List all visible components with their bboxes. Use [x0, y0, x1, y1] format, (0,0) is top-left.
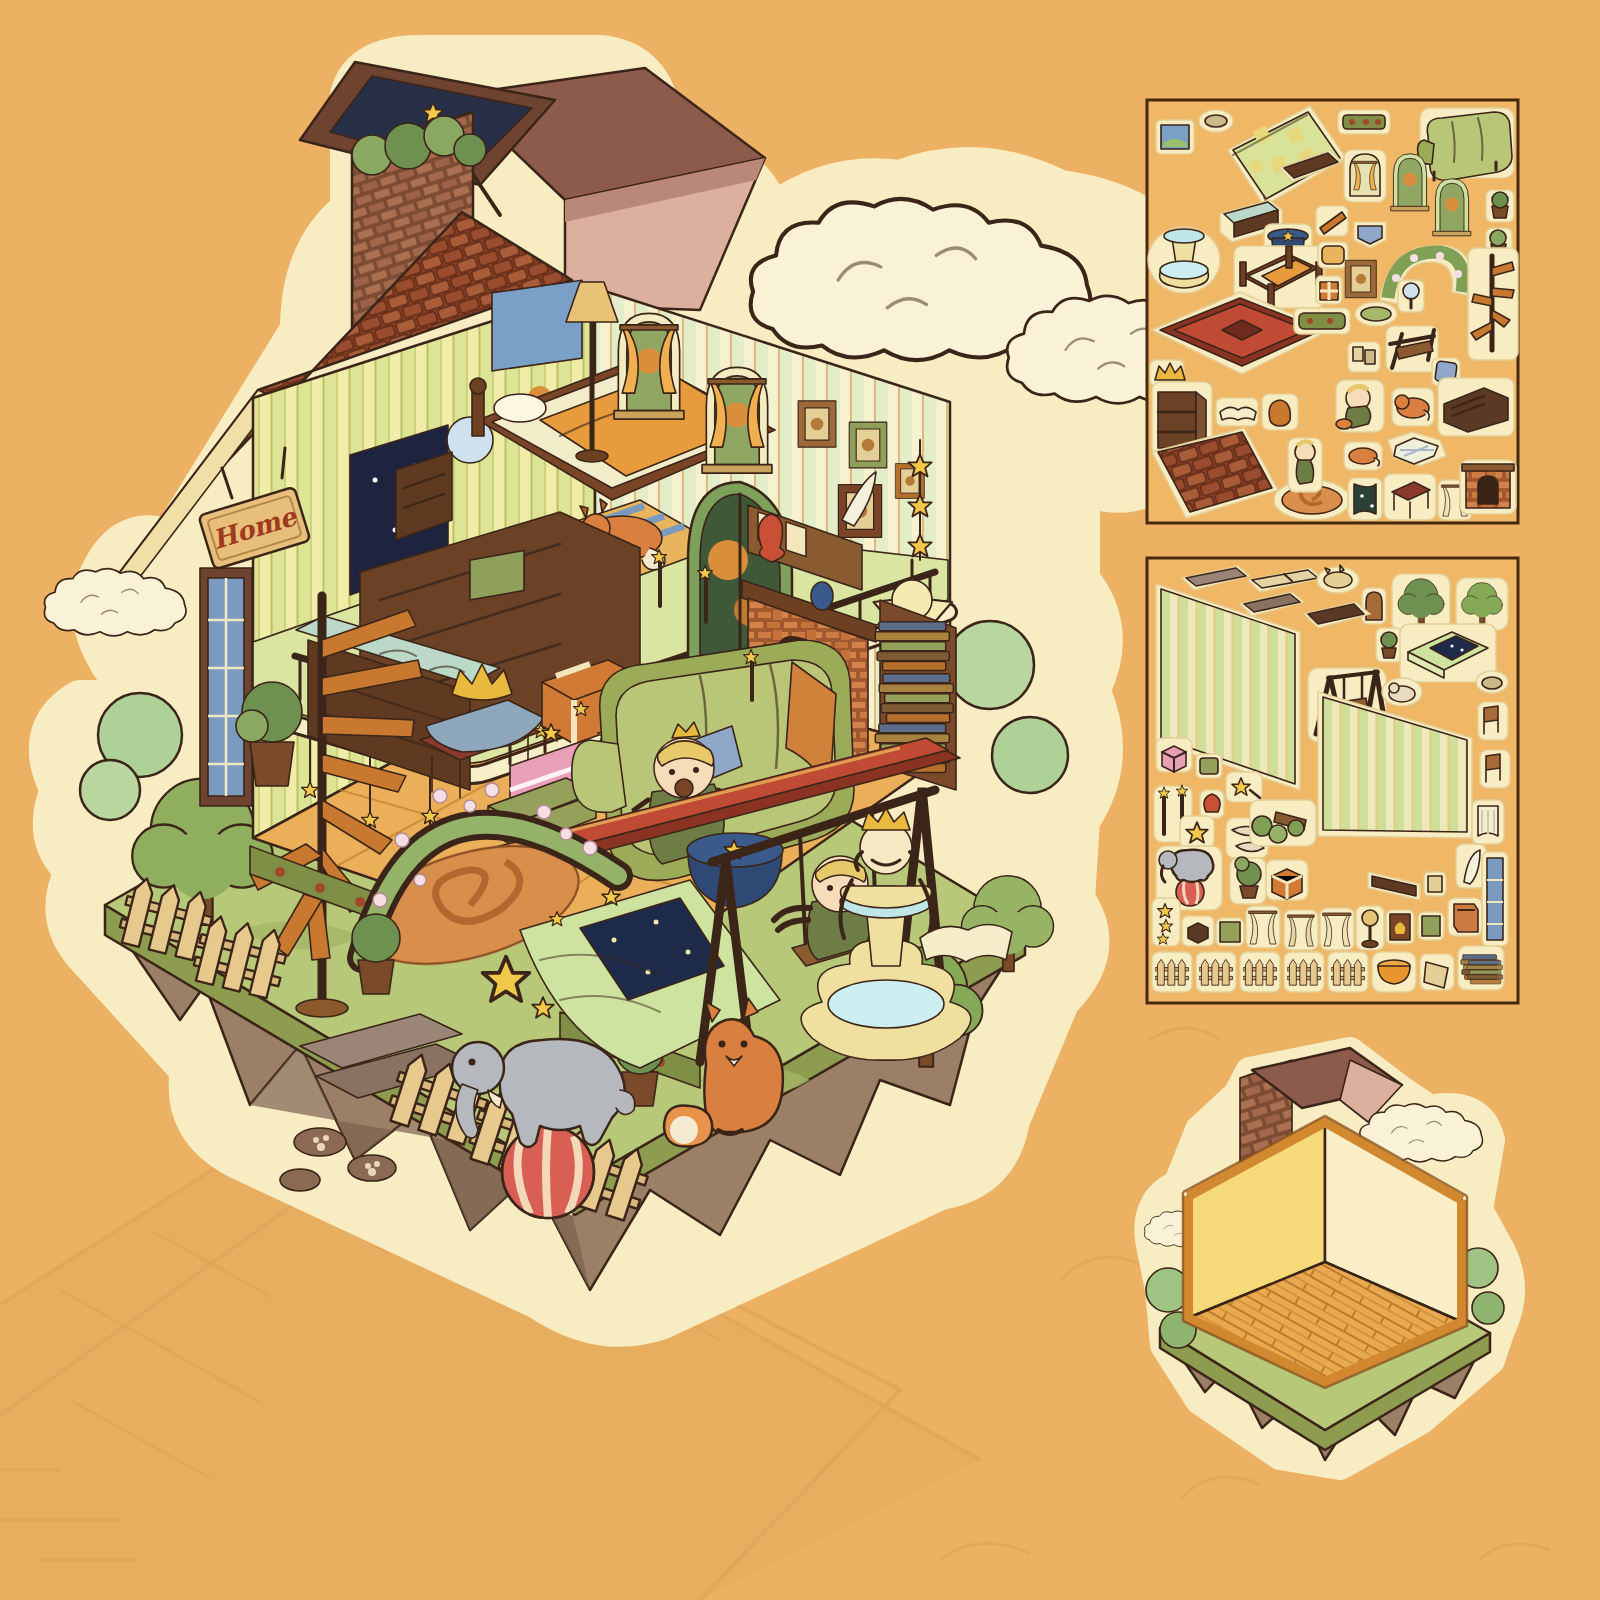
moss-scrap	[1199, 110, 1233, 132]
goat-scrap	[1382, 678, 1422, 706]
gift-box-2	[1266, 860, 1308, 900]
sticker-sheet-1	[1147, 100, 1518, 523]
fences-row	[1152, 952, 1368, 992]
stained-glass-door	[200, 568, 252, 806]
fence-e	[1328, 952, 1368, 992]
green-book	[1196, 754, 1222, 778]
fence-c	[1240, 952, 1280, 992]
wood-scrap	[1262, 394, 1298, 430]
wood-ladder	[1316, 206, 1348, 236]
potted-plant-a	[1486, 190, 1514, 222]
fountain	[1148, 227, 1220, 293]
red-vase	[1200, 790, 1224, 818]
red-stool	[1384, 474, 1436, 520]
small-frame	[1424, 872, 1446, 896]
round-ottoman	[1372, 952, 1416, 992]
fireplace-sticker	[1460, 460, 1516, 514]
sign-scrap	[1420, 954, 1454, 990]
paper-scrap	[1348, 342, 1380, 372]
hand-mirror	[1398, 280, 1424, 312]
empty-room-sticker	[1144, 1048, 1510, 1465]
cushion	[1318, 242, 1348, 268]
fire-painting	[1386, 910, 1414, 944]
pink-gift-box	[1156, 738, 1192, 772]
fence-d	[1284, 952, 1324, 992]
sticker-sheet-2	[1147, 558, 1518, 1003]
fence-b	[1196, 952, 1236, 992]
open-book	[920, 924, 1012, 962]
arch-window-b	[1433, 179, 1471, 236]
curtain-a	[1246, 906, 1280, 948]
towel-rack	[1386, 326, 1438, 372]
curtain-window	[1344, 150, 1386, 202]
chair-b	[1480, 750, 1510, 788]
illustration-canvas: Home	[0, 0, 1600, 1600]
potted-sapling	[1376, 628, 1402, 662]
lying-fox	[1344, 442, 1382, 470]
star-cookie	[1180, 816, 1214, 848]
moss-b	[1355, 302, 1397, 326]
framed-picture	[1156, 120, 1194, 154]
wooden-cube	[1182, 916, 1214, 946]
shooting-star	[1226, 772, 1262, 802]
starry-curtain	[1348, 478, 1382, 520]
framed-art-b	[1418, 912, 1444, 940]
paw-scrap	[1476, 671, 1508, 693]
hedge-strip	[1294, 308, 1350, 334]
gift-box	[1316, 276, 1342, 304]
framed-art-a	[1216, 918, 1244, 946]
dark-dresser	[1438, 378, 1514, 436]
arch-door	[1362, 588, 1386, 624]
teal-window	[1482, 852, 1508, 946]
framed-picture-b	[1346, 260, 1377, 297]
curtain-c	[1320, 908, 1354, 950]
open-book	[1216, 398, 1258, 426]
curtain-b	[1284, 910, 1318, 950]
prince-with-fox	[1336, 380, 1384, 432]
tree-b	[1456, 578, 1508, 630]
fence-a	[1152, 952, 1192, 992]
orange-book	[1448, 898, 1482, 936]
blue-jar	[811, 582, 833, 610]
flower-hedge	[1338, 110, 1390, 134]
lace-curtain	[1472, 800, 1504, 844]
star-strip	[1152, 898, 1180, 946]
spiral-staircase-sticker	[1468, 248, 1518, 360]
flower-bench	[1250, 800, 1316, 846]
product-image: Home	[0, 0, 1600, 1600]
mantel-vase	[758, 514, 784, 562]
sleeping-fox	[1392, 388, 1434, 426]
arch-window-a	[1391, 154, 1429, 211]
green-sofa	[1418, 108, 1514, 180]
prince-standing	[1288, 438, 1322, 492]
potted-topiary	[1230, 857, 1266, 904]
chair-a	[1478, 702, 1508, 740]
tree-lamp	[1356, 906, 1384, 950]
